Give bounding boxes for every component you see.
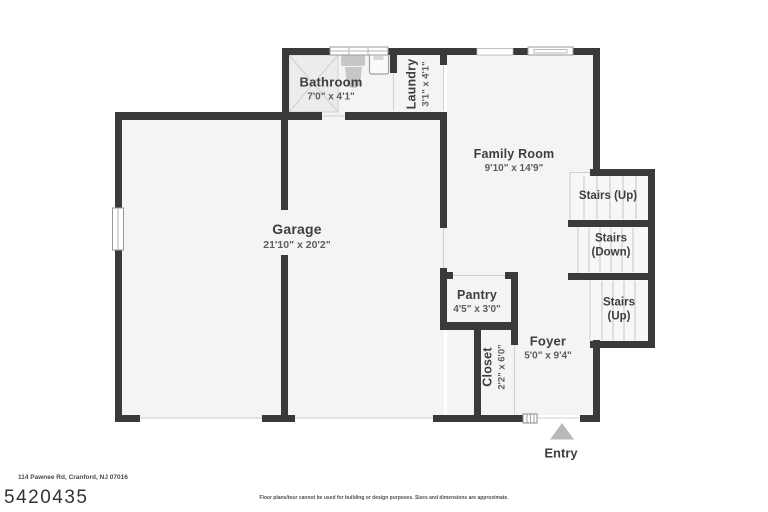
- stairs-down-label: Stairs (Down): [592, 232, 631, 261]
- bathroom-window: [330, 47, 388, 55]
- sink-icon: [370, 53, 389, 74]
- stairs-down-line2: (Down): [592, 246, 631, 260]
- disclaimer-text: Floor plans/tour cannot be used for buil…: [259, 495, 508, 501]
- family-room-dims: 9'10" x 14'9": [474, 163, 555, 175]
- laundry-dims: 3'1" x 4'1": [420, 59, 431, 110]
- property-address: 114 Pawnee Rd, Cranford, NJ 07016: [18, 474, 128, 481]
- room-floors: [118, 51, 593, 419]
- closet-dims: 2'2" x 6'0": [496, 344, 507, 389]
- room-label-garage: Garage 21'10" x 20'2": [263, 221, 331, 251]
- room-label-laundry: Laundry 3'1" x 4'1": [404, 59, 431, 110]
- room-label-foyer: Foyer 5'0" x 9'4": [524, 334, 572, 363]
- family-room-window-right: [528, 47, 573, 55]
- stairs-down-line1: Stairs: [592, 232, 631, 246]
- room-label-family-room: Family Room 9'10" x 14'9": [474, 147, 555, 175]
- family-room-window-left: [477, 49, 513, 56]
- entry-sidelight: [523, 414, 537, 423]
- foyer-name: Foyer: [524, 334, 572, 350]
- foyer-dims: 5'0" x 9'4": [524, 350, 572, 362]
- stairs-lower-label: Stairs (Up): [603, 296, 635, 325]
- mls-number: 5420435: [4, 487, 88, 509]
- room-label-pantry: Pantry 4'5" x 3'0": [453, 288, 501, 316]
- floor-plan: Bathroom 7'0" x 4'1" Laundry 3'1" x 4'1"…: [0, 0, 768, 512]
- room-label-bathroom: Bathroom 7'0" x 4'1": [300, 75, 363, 104]
- stairs-lower-line2: (Up): [603, 310, 635, 324]
- pantry-dims: 4'5" x 3'0": [453, 304, 501, 316]
- entry-arrow-icon: [550, 423, 574, 440]
- bathroom-name: Bathroom: [300, 75, 363, 91]
- family-room-name: Family Room: [474, 147, 555, 162]
- entry-label: Entry: [544, 446, 577, 461]
- floor-plan-drawing: [0, 0, 768, 512]
- garage-name: Garage: [263, 221, 331, 238]
- laundry-name: Laundry: [404, 59, 419, 110]
- stairs-upper-label: Stairs (Up): [579, 189, 637, 203]
- garage-side-window: [113, 208, 124, 250]
- pantry-name: Pantry: [453, 288, 501, 303]
- garage-dims: 21'10" x 20'2": [263, 239, 331, 252]
- bathroom-dims: 7'0" x 4'1": [300, 91, 363, 103]
- room-label-closet: Closet 2'2" x 6'0": [480, 344, 507, 389]
- stairs-lower-line1: Stairs: [603, 296, 635, 310]
- closet-name: Closet: [480, 344, 495, 389]
